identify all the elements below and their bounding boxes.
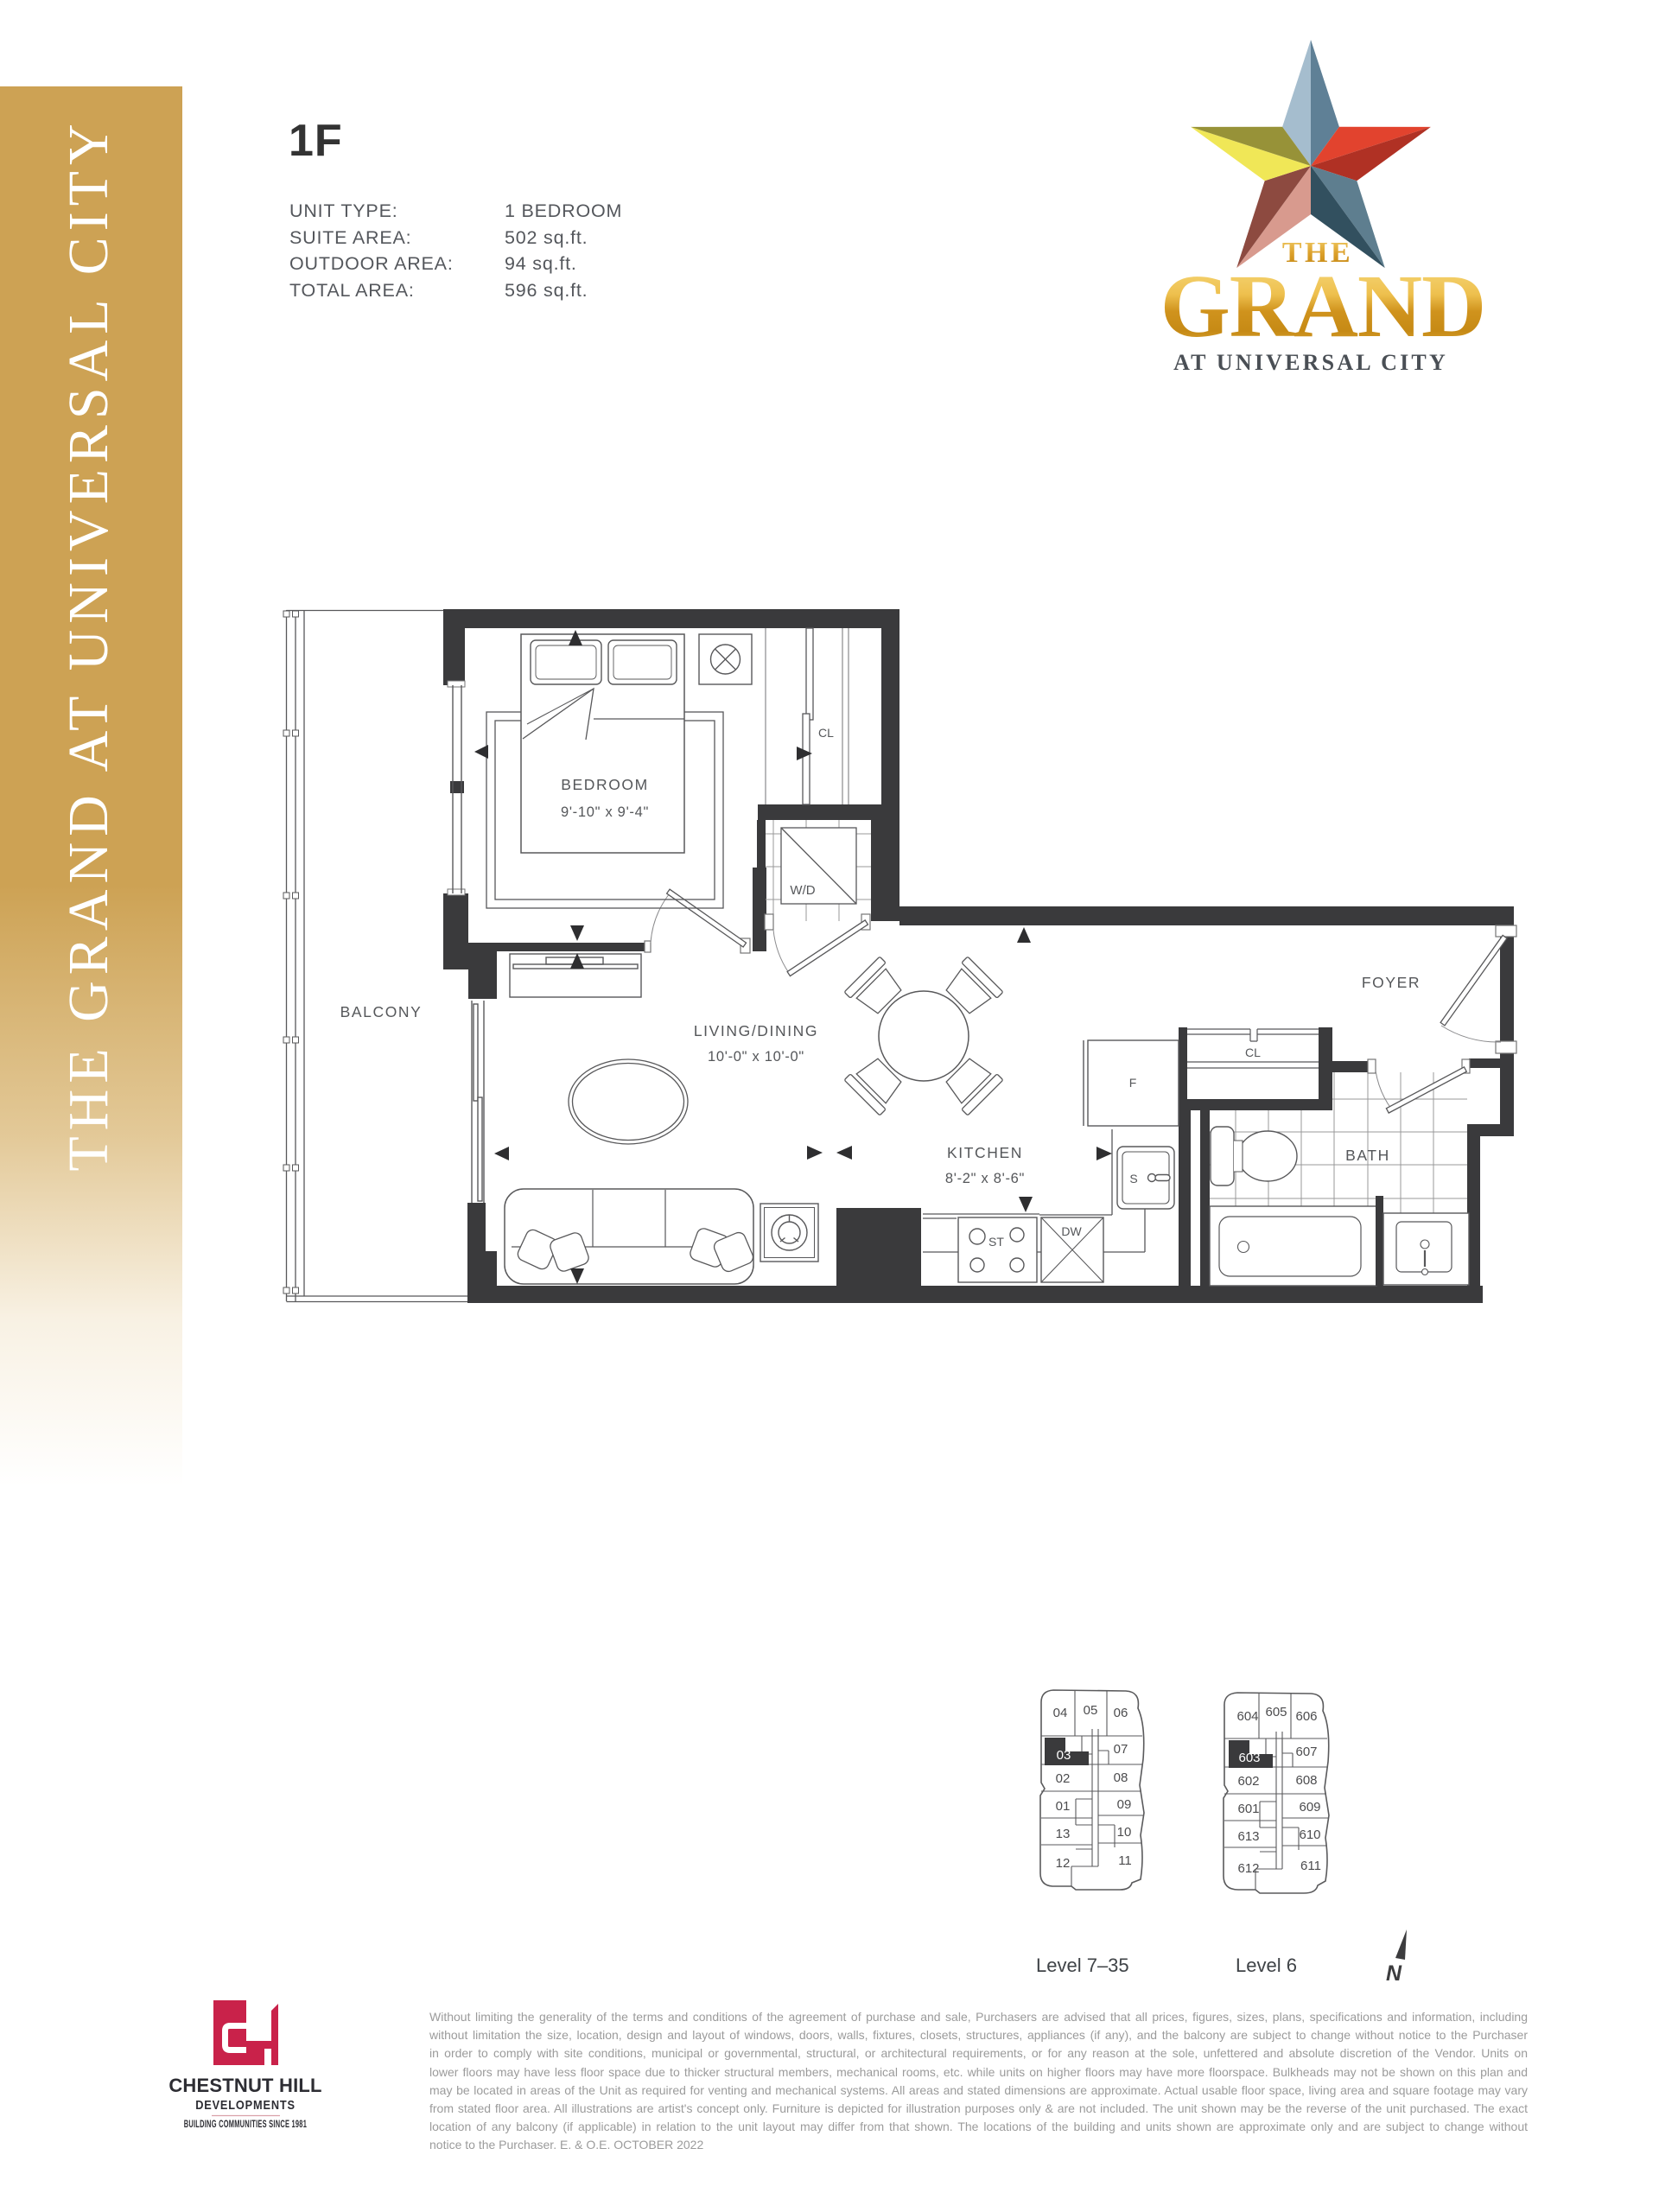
svg-text:F: F — [1129, 1076, 1137, 1090]
svg-text:02: 02 — [1056, 1771, 1071, 1786]
svg-text:602: 602 — [1237, 1774, 1259, 1789]
svg-text:BALCONY: BALCONY — [340, 1003, 423, 1020]
svg-text:612: 612 — [1237, 1861, 1259, 1876]
svg-text:601: 601 — [1237, 1802, 1259, 1816]
svg-text:11: 11 — [1118, 1853, 1132, 1868]
svg-text:08: 08 — [1114, 1770, 1128, 1785]
svg-text:611: 611 — [1300, 1859, 1321, 1873]
svg-text:N: N — [1386, 1961, 1402, 1986]
svg-text:01: 01 — [1056, 1799, 1071, 1814]
svg-text:05: 05 — [1084, 1703, 1098, 1718]
svg-text:CL: CL — [818, 726, 834, 740]
svg-text:607: 607 — [1295, 1745, 1317, 1759]
svg-text:604: 604 — [1236, 1709, 1258, 1724]
svg-text:KITCHEN: KITCHEN — [947, 1144, 1023, 1161]
svg-text:605: 605 — [1265, 1705, 1287, 1719]
svg-text:12: 12 — [1056, 1856, 1071, 1871]
svg-text:603: 603 — [1238, 1751, 1260, 1765]
svg-text:CHESTNUT HILL: CHESTNUT HILL — [168, 2075, 321, 2096]
svg-text:FOYER: FOYER — [1362, 974, 1421, 991]
svg-text:GRAND: GRAND — [1160, 257, 1485, 356]
svg-text:07: 07 — [1114, 1742, 1128, 1757]
svg-text:13: 13 — [1056, 1827, 1071, 1841]
svg-text:BATH: BATH — [1345, 1147, 1390, 1164]
svg-text:DEVELOPMENTS: DEVELOPMENTS — [195, 2097, 296, 2112]
svg-text:BUILDING COMMUNITIES SINCE 198: BUILDING COMMUNITIES SINCE 1981 — [184, 2119, 307, 2130]
svg-text:608: 608 — [1295, 1773, 1317, 1788]
svg-text:8'-2" x 8'-6": 8'-2" x 8'-6" — [945, 1171, 1025, 1186]
svg-text:610: 610 — [1299, 1827, 1320, 1842]
svg-text:10'-0" x 10'-0": 10'-0" x 10'-0" — [708, 1049, 804, 1065]
svg-text:606: 606 — [1295, 1709, 1317, 1724]
svg-text:613: 613 — [1237, 1829, 1259, 1844]
svg-text:ST: ST — [988, 1235, 1004, 1249]
svg-text:S: S — [1129, 1172, 1137, 1185]
svg-text:9'-10" x 9'-4": 9'-10" x 9'-4" — [561, 804, 649, 820]
svg-text:03: 03 — [1057, 1748, 1071, 1763]
svg-text:AT UNIVERSAL CITY: AT UNIVERSAL CITY — [1173, 350, 1448, 375]
svg-text:09: 09 — [1117, 1797, 1132, 1812]
svg-text:10: 10 — [1117, 1825, 1132, 1840]
svg-text:CL: CL — [1245, 1046, 1261, 1059]
svg-text:06: 06 — [1114, 1706, 1128, 1720]
svg-text:DW: DW — [1061, 1224, 1082, 1238]
svg-text:04: 04 — [1053, 1706, 1068, 1720]
svg-text:W/D: W/D — [790, 883, 815, 898]
svg-text:BEDROOM: BEDROOM — [561, 776, 649, 793]
svg-text:609: 609 — [1299, 1800, 1320, 1815]
svg-text:LIVING/DINING: LIVING/DINING — [694, 1022, 818, 1039]
